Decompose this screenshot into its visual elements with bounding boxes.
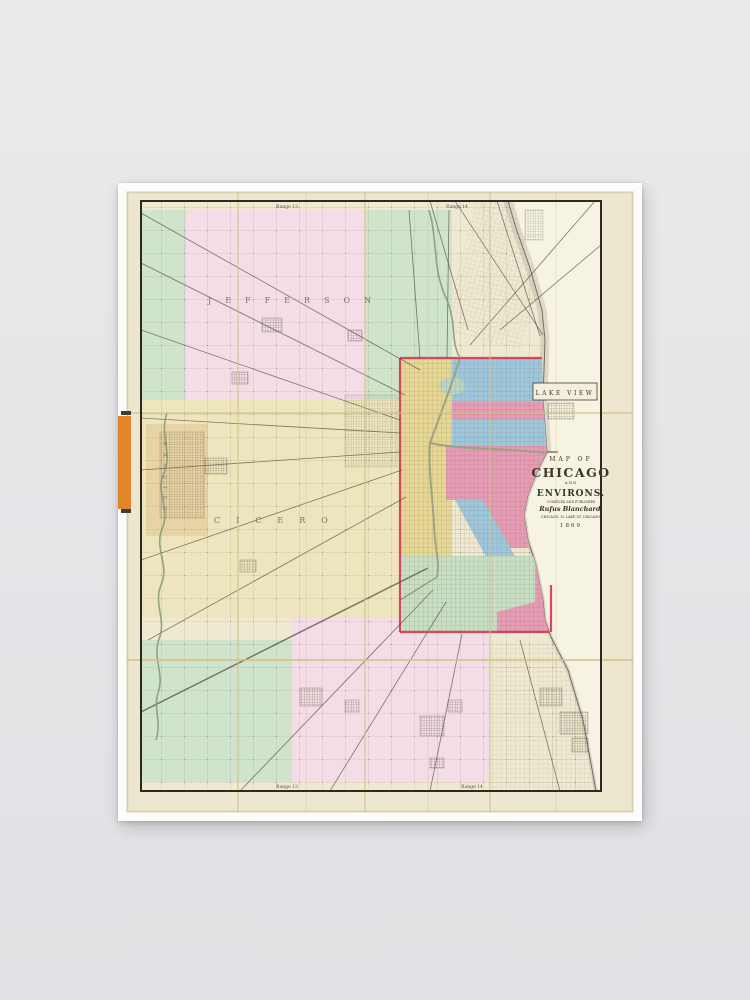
lakeview-label: LAKE VIEW bbox=[536, 390, 595, 397]
poster: LAKE VIEW MAP OF CHICAGO AND ENVIRONS. C… bbox=[118, 183, 642, 821]
title-chicago: CHICAGO bbox=[531, 465, 610, 480]
map-image: LAKE VIEW MAP OF CHICAGO AND ENVIRONS. C… bbox=[118, 183, 642, 821]
title-and: AND bbox=[564, 480, 578, 485]
range-label-bottom-west: Range 13 bbox=[276, 784, 298, 790]
range-label-top-east: Range 14 bbox=[446, 204, 468, 210]
title-year: 1869 bbox=[560, 523, 582, 529]
title-cartouche: MAP OF CHICAGO AND ENVIRONS. COMPILED AN… bbox=[531, 456, 610, 529]
product-photo-background: LAKE VIEW MAP OF CHICAGO AND ENVIRONS. C… bbox=[0, 0, 750, 1000]
township-label-jefferson: JEFFERSON bbox=[207, 296, 385, 305]
orange-binding-tab bbox=[118, 416, 131, 509]
title-environs: ENVIRONS. bbox=[537, 489, 605, 499]
township-label-cicero: CICERO bbox=[214, 516, 344, 525]
title-map-of: MAP OF bbox=[549, 456, 593, 463]
tab-mark-bottom bbox=[121, 509, 131, 513]
range-label-bottom-east: Range 14 bbox=[461, 784, 483, 790]
tab-mark-top bbox=[121, 411, 131, 415]
title-compiled: COMPILED AND PUBLISHED bbox=[547, 500, 596, 504]
township-label-proviso: PROVISO bbox=[161, 442, 167, 518]
range-label-top-west: Range 13 bbox=[276, 204, 298, 210]
title-publisher: Rufus Blanchard, bbox=[538, 505, 603, 513]
title-imprint: CHICAGO, 52 LAKE ST. CHICAGO. bbox=[541, 515, 601, 519]
